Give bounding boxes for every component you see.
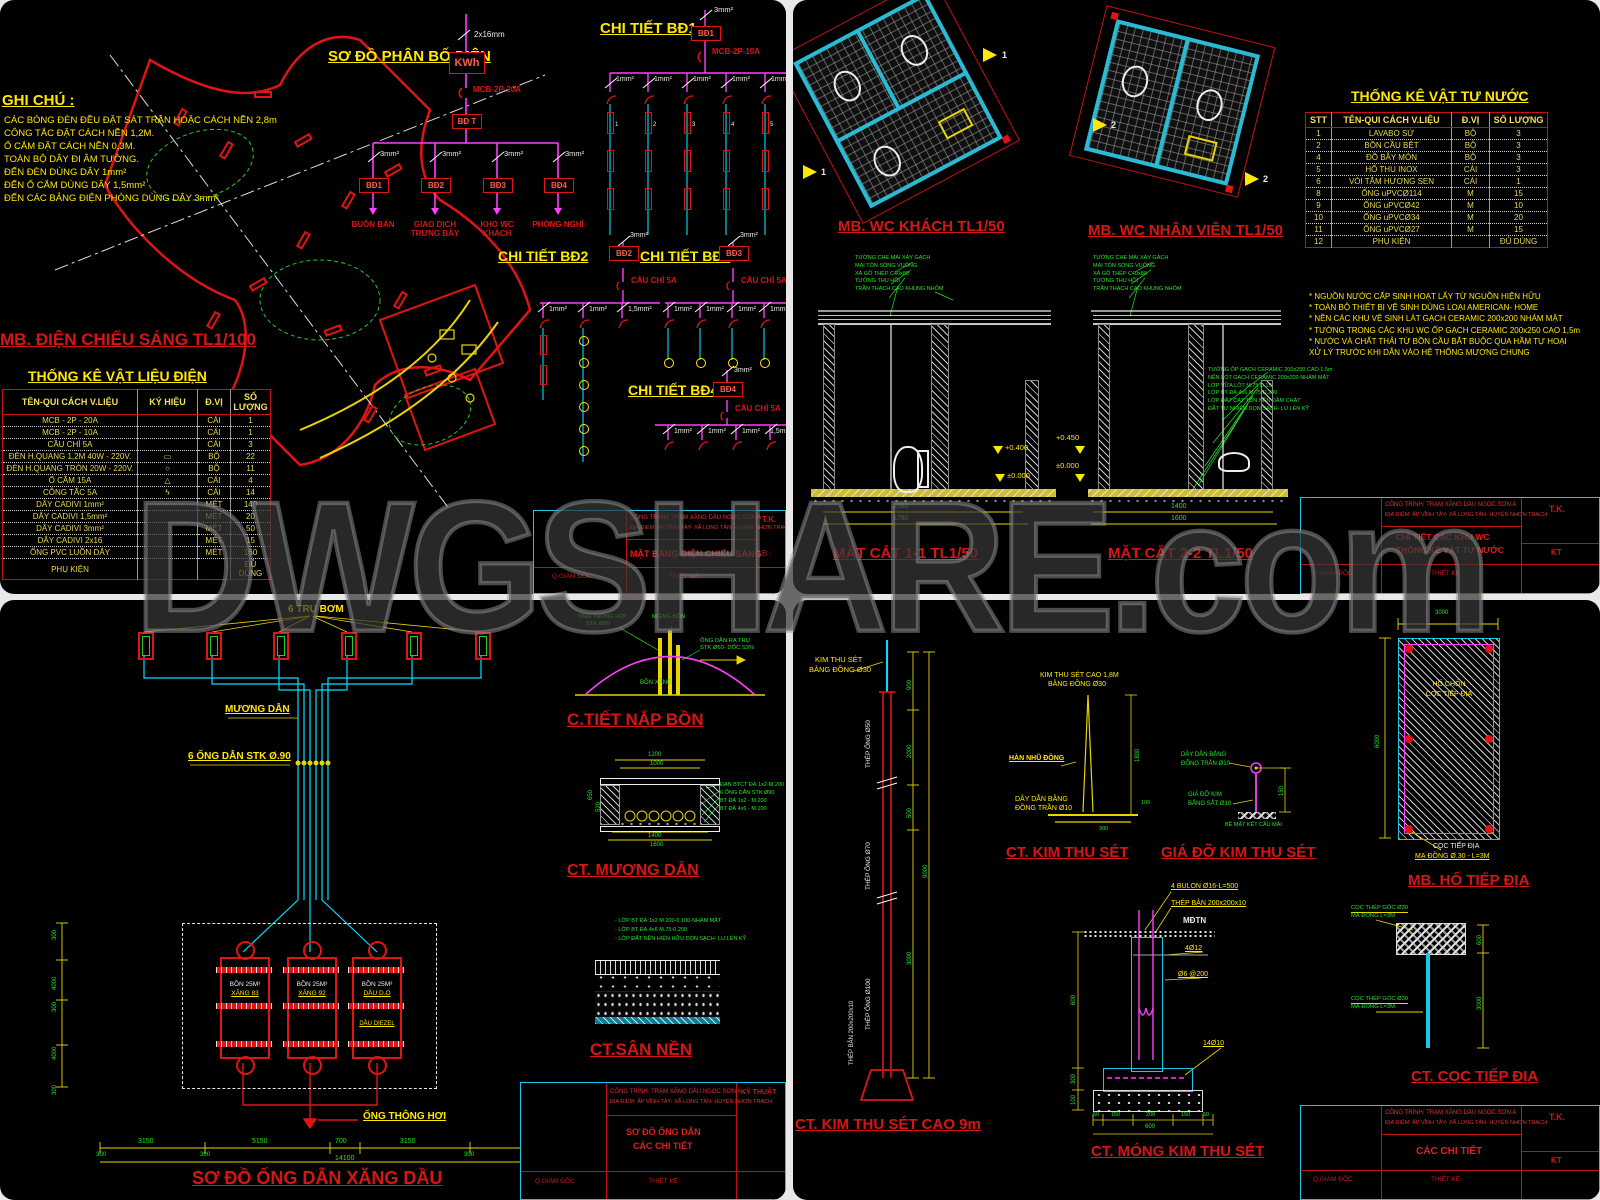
col-header: TÊN-QUI CÁCH V.LIỆU (3, 390, 138, 415)
dim-label: 3150 (138, 1138, 154, 1146)
table-cell: 20 (1490, 212, 1548, 224)
load-label: BUÔN BÁN (338, 220, 408, 229)
bd4-feeder: 3mm² (734, 367, 752, 375)
table-cell: HỐ THU INOX (1332, 164, 1452, 176)
wire-label: 1mm² (654, 76, 672, 84)
annotation: TƯỜNG THU HỒI (855, 279, 944, 285)
dim-label: 4000 (52, 977, 59, 990)
pit-pile-label: CỌC TIẾP ĐỊA (1433, 843, 1479, 851)
dim-label: 3000 (1435, 610, 1448, 617)
tb-role-director: Q.GIÁM ĐỐC (552, 573, 592, 581)
board-box: BĐ2 (421, 178, 451, 193)
dim-label: 200 (1146, 1112, 1155, 1118)
table-cell: 50 (231, 523, 271, 535)
pit-label: HỐ CHÔN (1399, 681, 1499, 689)
sec1-subfloor (811, 497, 1056, 506)
bracket-label: BẰNG SẮT Ø10 (1188, 801, 1231, 808)
dim-label: 300 (200, 1152, 210, 1159)
table-cell: VÒI TẮM HƯƠNG SEN (1332, 176, 1452, 188)
table-row: 8ỐNG uPVCØ114M15 (1306, 188, 1548, 200)
table-cell: ỐNG PVC LUỒN DÂY (3, 547, 138, 559)
col-header: KÝ HIỆU (138, 390, 198, 415)
flag-number: 2 (1263, 174, 1268, 184)
pumps-label: 6 TRỤ BƠM (288, 604, 344, 616)
dim-label: 300 (1071, 1074, 1078, 1084)
table-cell (138, 499, 198, 511)
panel-electrical-plan: GHI CHÚ : CÁC BÓNG ĐÈN ĐỀU ĐẶT SÁT TRẦN … (0, 0, 786, 594)
lamp-number: 2 (653, 122, 656, 129)
annotation: MÁI TÔN SÓNG VUÔNG (1093, 264, 1182, 270)
cap-annotation: ỐNG THÔNG HƠI (578, 614, 626, 621)
dim-label: 300 (96, 1152, 106, 1159)
table-cell: PHỤ KIỆN (3, 559, 138, 580)
table-cell: 3 (1490, 164, 1548, 176)
table-row: 2BỒN CẦU BỆTBỘ3 (1306, 140, 1548, 152)
dim-label: 600 (1071, 995, 1078, 1005)
load-label: PHÒNG NGHỈ (524, 220, 592, 229)
tb-right: B : (762, 549, 772, 559)
table-cell: CÁI (198, 415, 231, 427)
wire-label: 1mm² (549, 306, 567, 314)
found-ground-label: MĐTN (1183, 916, 1206, 925)
building-fixtures (428, 330, 476, 402)
dim-total: 14100 (335, 1155, 354, 1163)
pole-segment-label: THÉP ỐNG Ø70 (865, 842, 872, 890)
cap-annotation: BỒN XĂNG (640, 680, 672, 687)
pole-base-label: THÉP BẢN 200x200x10 (849, 1001, 856, 1065)
tb-drawing-name1: SƠ ĐỒ ỐNG DẪN (626, 1127, 701, 1138)
table-cell: ĐỒ BẪY MÓN (1332, 152, 1452, 164)
tb-drawing-name2: THỐNG KÊ VẬT TƯ NƯỚC (1396, 545, 1504, 556)
dim-label: 1000 (650, 761, 663, 768)
found-label: 4Ø12 (1185, 945, 1202, 953)
channel-wall (700, 785, 720, 825)
table-cell: DÂY CADIVI 2x16 (3, 535, 138, 547)
tb-role-director: Q.GIÁM ĐỐC (1313, 1176, 1353, 1184)
table-row: 6VÒI TẮM HƯƠNG SENCÁI1 (1306, 176, 1548, 188)
table-cell: BỘ (1452, 128, 1490, 140)
dim-label: 6000 (1375, 735, 1382, 748)
table-cell: 140 (231, 499, 271, 511)
tank: BỒN 25M³ XĂNG 92 (287, 957, 337, 1059)
wc-plan2-title: MB. WC NHÂN VIÊN TL1/50 (1088, 222, 1283, 239)
tank-label: BỒN 25M³ (289, 981, 335, 988)
table-cell: 3 (1490, 140, 1548, 152)
table-cell: CÁI (198, 439, 231, 451)
table-row: DÂY CADIVI 2x16MÉT15 (3, 535, 271, 547)
col-header: SỐ LƯỢNG (1490, 113, 1548, 128)
tb-project-line1: CÔNG TRÌNH: TRẠM XĂNG DẦU NGỌC SƠN A (630, 515, 761, 523)
note-line: * NỀN CÁC KHU VỆ SINH LÁT GẠCH CERAMIC 2… (1309, 314, 1580, 323)
annotation: - LỚP BT ĐÁ 1x2 M.200-0.100-NHÁM MẶT (615, 918, 746, 925)
table-row: ỐNG PVC LUỒN DÂYMÉT160 (3, 547, 271, 559)
note-line: * TƯỜNG TRONG CÁC KHU WC ỐP GẠCH CERAMIC… (1309, 326, 1580, 335)
pump-box (406, 632, 422, 660)
bd2-protection: CẦU CHÌ 5A (631, 276, 677, 285)
tb-project-line1: CÔNG TRÌNH: TRẠM XĂNG DẦU NGỌC SƠN A (610, 1089, 741, 1097)
note-line: CÁC BÓNG ĐÈN ĐỀU ĐẶT SÁT TRẦN HOẶC CÁCH … (4, 116, 277, 127)
pole-segment-label: THÉP ỐNG Ø50 (865, 720, 872, 768)
table-row: PHỤ KIỆNĐỦ DÙNG (3, 559, 271, 580)
bd3-protection: CẦU CHÌ 5A (741, 276, 786, 285)
elevation-label: +0.400 (1005, 444, 1028, 453)
found-label: 14Ø10 (1203, 1040, 1224, 1048)
table-row: Ổ CẮM 15A△CÁI4 (3, 475, 271, 487)
plan-title: MB. ĐIỆN CHIẾU SÁNG TL1/100 (0, 330, 256, 350)
note-line: * NƯỚC VÀ CHẤT THẢI TỪ BỒN CẦU BẮT BUỘC … (1309, 337, 1580, 346)
channel-section-bot (600, 826, 720, 832)
cap-title: C.TIẾT NẮP BỒN (567, 710, 704, 730)
channel-label: MƯƠNG DẪN (225, 704, 290, 716)
fuel-main-title: SƠ ĐỒ ỐNG DẪN XĂNG DẦU (192, 1168, 442, 1189)
sec1-wall (931, 324, 949, 491)
table-cell: ĐỦ DÙNG (231, 559, 271, 580)
bd2-feeder: 3mm² (630, 232, 648, 240)
table-cell: ỐNG uPVCØ114 (1332, 188, 1452, 200)
annotation: TƯỜNG CHE MÁI XÂY GẠCH (1093, 256, 1182, 262)
tank: BỒN 25M³ DẦU D.O DẦU DIEZEL (352, 957, 402, 1059)
table-cell: 10 (1306, 212, 1332, 224)
table-cell: ĐÈN H.QUANG 1,2M 40W - 220V. (3, 451, 138, 463)
table-cell: 1 (1490, 176, 1548, 188)
lamp-number: 5 (770, 122, 773, 129)
found-label: 4 BULON Ø16-L=500 (1171, 883, 1238, 891)
note-line: ĐẾN CÁC BẢNG ĐIỆN PHÒNG DÙNG DÂY 3mm² (4, 194, 277, 205)
annotation: - LỚP BT ĐÁ 4x6 M.75-0.200 (615, 927, 746, 934)
sec1-floor (811, 489, 1056, 497)
water-table-title: THỐNG KÊ VẬT TƯ NƯỚC (1351, 88, 1529, 104)
wire-label: 1mm² (732, 76, 750, 84)
title-block: CÔNG TRÌNH: TRẠM XĂNG DẦU NGỌC SƠN A ĐỊA… (533, 510, 786, 594)
dim-label: 300 (464, 1152, 474, 1159)
bd1-feeder: 3mm² (714, 6, 733, 15)
table-cell: ▭ (138, 451, 198, 463)
distribution-tree-lines (373, 14, 558, 208)
board-box: BĐ3 (483, 178, 513, 193)
panel-fuel-piping: 6 TRỤ BƠM MƯƠNG DẪN 6 ỐNG DẪN STK Ø.90 B… (0, 600, 786, 1200)
pile-label: MẠ ĐỒNG L=3M (1351, 1004, 1395, 1011)
pit-pile-label: MẠ ĐỒNG Ø.30 - L=3M (1415, 853, 1490, 861)
table-cell: LAVABO SỨ (1332, 128, 1452, 140)
pump-box (138, 632, 154, 660)
tank-label: XĂNG 92 (289, 990, 335, 997)
dim-label: 600 (1477, 935, 1484, 945)
table-cell: BỘ (1452, 152, 1490, 164)
table-cell (1452, 236, 1490, 248)
table-cell: 11 (1306, 224, 1332, 236)
dim-label: 3000 (907, 952, 914, 965)
annotation: BT ĐÁ 4x6 - M.100 (720, 806, 784, 812)
annotation: TƯỜNG THU HỒI (1093, 279, 1182, 285)
table-cell: CẦU CHÌ 5A (3, 439, 138, 451)
board-box: BĐ1 (359, 178, 389, 193)
table-row: ĐÈN H.QUANG TRÒN 20W - 220V.○BỘ11 (3, 463, 271, 475)
bd4-title: CHI TIẾT BĐ4 (628, 382, 718, 398)
dim-label: 1600 (1171, 515, 1187, 523)
lavabo-profile (1218, 452, 1250, 472)
annotation: ĐAN BTCT ĐÁ 1x2-M.200 (720, 782, 784, 788)
kwh-meter-box: KWh (449, 52, 485, 74)
sec2-wall (1188, 324, 1204, 491)
kim-label: KIM THU SÉT CAO 1,8M (1040, 672, 1119, 680)
annotation: XÀ GỒ THÉP C40x80 (1093, 272, 1182, 278)
load-label: KHO WC KHÁCH (467, 220, 527, 238)
tb-project-line2: ĐỊA ĐIỂM: ẤP VĨNH TÂY- XÃ LONG TÂN- HUYỆ… (1385, 1120, 1547, 1127)
wc-plan-nhanvien (1084, 19, 1260, 186)
table-cell: BỘ (198, 451, 231, 463)
table-row: MCB - 2P - 20ACÁI1 (3, 415, 271, 427)
branch-wire-label: 3mm² (442, 150, 461, 159)
table-row: 9ỐNG uPVCØ42M10 (1306, 200, 1548, 212)
cap-annotation: ỐNG DẪN RA TRỤ (700, 638, 750, 645)
table-cell: CÁI (1452, 176, 1490, 188)
table-cell: 15 (1490, 224, 1548, 236)
elevation-label: ±0.000 (1056, 462, 1079, 471)
table-row: 5HỐ THU INOXCÁI3 (1306, 164, 1548, 176)
load-label: GIAO DỊCH TRƯNG BÀY (405, 220, 465, 238)
col-header: STT (1306, 113, 1332, 128)
table-cell: 15 (231, 535, 271, 547)
col-header: SỐ LƯỢNG (231, 390, 271, 415)
flag-number: 2 (1111, 120, 1116, 130)
roof-surface-hatch (1238, 812, 1276, 819)
kim-wire-label: DÂY DẪN BẰNG (1015, 796, 1068, 804)
title-block: CÔNG TRÌNH: TRẠM XĂNG DẦU NGỌC SƠN A ĐỊA… (1300, 497, 1600, 594)
wire-label: 1mm² (589, 306, 607, 314)
wire-label: 1mm² (693, 76, 711, 84)
elevation-label: +0.450 (1056, 434, 1079, 443)
table-cell: 10 (1490, 200, 1548, 212)
note-line: Ổ CẮM ĐẶT CÁCH NỀN 0,3M. (4, 142, 277, 153)
bd2-board-box: BĐ2 (609, 246, 639, 261)
table-cell: ĐỦ DÙNG (1490, 236, 1548, 248)
water-notes: * NGUỒN NƯỚC CẤP SINH HOẠT LẤY TỪ NGUỒN … (1309, 292, 1580, 359)
table-cell (138, 415, 198, 427)
dim-label: 4000 (52, 1047, 59, 1060)
table-cell: CÁI (198, 475, 231, 487)
table-cell (138, 559, 198, 580)
col-header: Đ.VỊ (198, 390, 231, 415)
table-row: 11ỐNG uPVCØ27M15 (1306, 224, 1548, 236)
title-block: CÔNG TRÌNH: TRẠM XĂNG DẦU NGỌC SƠN A ĐỊA… (520, 1082, 786, 1200)
pit-label: CỌC TIẾP ĐỊA (1399, 691, 1499, 699)
wire-label: 1,5mm² (628, 306, 652, 314)
cap-annotation: STK Ø60- DỐC S3% (700, 645, 754, 652)
note-line: ĐẾN ĐÈN DÙNG DÂY 1mm² (4, 168, 277, 179)
cad-sheet: GHI CHÚ : CÁC BÓNG ĐÈN ĐỀU ĐẶT SÁT TRẦN … (0, 0, 1600, 1200)
wire-label: 1,5mm² (770, 428, 786, 436)
tb-project-line1: CÔNG TRÌNH: TRẠM XĂNG DẦU NGỌC SƠN A (1385, 1110, 1516, 1118)
title-block: CÔNG TRÌNH: TRẠM XĂNG DẦU NGỌC SƠN A ĐỊA… (1300, 1105, 1600, 1200)
wire-label: 1mm² (706, 306, 724, 314)
table-cell: △ (138, 475, 198, 487)
bracket-label: DÂY DẪN BẰNG (1181, 752, 1226, 759)
floor-layer4 (595, 1017, 720, 1024)
dim-label: 100 (1071, 1095, 1078, 1105)
table-cell: 160 (231, 547, 271, 559)
dim-label: 1200 (648, 752, 661, 759)
elec-table-title: THỐNG KÊ VẬT LIỆU ĐIỆN (28, 368, 207, 384)
earth-pit: HỐ CHÔN CỌC TIẾP ĐỊA (1398, 638, 1500, 840)
sec2-wall (1261, 380, 1273, 491)
annotation: - LỚP ĐẤT NỀN HIỆN HỮU DỌN SẠCH- LU LÈN … (615, 936, 746, 943)
gravel-band (1093, 1090, 1203, 1112)
mcb-symbol (459, 88, 462, 98)
sec2-roof (1093, 312, 1281, 325)
pole-tip-label: BẰNG ĐỒNG Ø30 (809, 666, 871, 675)
table-cell: M (1452, 188, 1490, 200)
pump-box (341, 632, 357, 660)
kim-weld-label: HÀN NHŨ ĐỒNG (1009, 755, 1064, 763)
table-cell: 22 (231, 451, 271, 463)
wire-label: 1mm² (742, 428, 760, 436)
table-cell: ỐNG uPVCØ34 (1332, 212, 1452, 224)
table-cell: 20 (231, 511, 271, 523)
pipes-label: 6 ỐNG DẪN STK Ø.90 (188, 751, 291, 763)
table-cell: M (1452, 212, 1490, 224)
tb-right: KỸ THUẬT (741, 1089, 776, 1098)
bd3-title: CHI TIẾT BĐ3 (640, 248, 730, 264)
table-cell (138, 523, 198, 535)
table-cell: ○ (138, 463, 198, 475)
lamp-number: 1 (615, 122, 618, 129)
pile-label: MẠ ĐỒNG L=3M (1351, 913, 1395, 920)
table-cell: 9 (1306, 200, 1332, 212)
table-cell: DÂY CADIVI 3mm² (3, 523, 138, 535)
table-cell: 3 (1490, 152, 1548, 164)
panel-lightning-protection: KIM THU SÉT BẰNG ĐỒNG Ø30 THÉP ỐNG Ø50 T… (793, 600, 1600, 1200)
note-line: * TOÀN BỘ THIẾT BỊ VỆ SINH DÙNG LOẠI AME… (1309, 303, 1580, 312)
sec2-title: MẶT CẮT 2-2 TL1/50 (1108, 545, 1253, 562)
pump-box (475, 632, 491, 660)
table-cell: MÉT (198, 547, 231, 559)
table-cell: BỒN CẦU BỆT (1332, 140, 1452, 152)
cap-annotation: MIỆNG BỒN (652, 614, 685, 621)
table-cell (198, 559, 231, 580)
dim-label: 300 (52, 1085, 59, 1095)
table-cell: 11 (231, 463, 271, 475)
pile-title: CT. CỌC TIẾP ĐỊA (1411, 1068, 1538, 1085)
table-cell: DÂY CADIVI 1mm² (3, 499, 138, 511)
pump-box (273, 632, 289, 660)
notes-list: CÁC BÓNG ĐÈN ĐỀU ĐẶT SÁT TRẦN HOẶC CÁCH … (4, 116, 277, 206)
branch-wire-label: 3mm² (504, 150, 523, 159)
bd1-title: CHI TIẾT BĐ1 (600, 20, 697, 37)
flag-number: 1 (1002, 50, 1007, 60)
annotation: 6 ỐNG DẪN STK Ø90 (720, 790, 784, 796)
panel-wc-details: 1 1 2 2 MB. WC KHÁCH TL1/50 MB. WC NHÂN … (793, 0, 1600, 594)
table-row: CẦU CHÌ 5ACÁI3 (3, 439, 271, 451)
wire-label: 1mm² (616, 76, 634, 84)
tb-role-design: THIẾT KẾ (1431, 1176, 1460, 1184)
toilet-tank (917, 450, 929, 488)
found-label: THÉP BẢN 200x200x10 (1171, 900, 1246, 908)
pole-title: CT. KIM THU SÉT CAO 9m (795, 1116, 981, 1133)
table-cell: BỘ (198, 463, 231, 475)
table-cell: DÂY CADIVI 1,5mm² (3, 511, 138, 523)
table-cell: MÉT (198, 535, 231, 547)
bracket-title: GIÁ ĐỠ KIM THU SÉT (1161, 844, 1315, 861)
dim-label: 3000 (1477, 997, 1484, 1010)
pump-box (206, 632, 222, 660)
note-line: TOÀN BỘ DÂY ĐI ÂM TƯỜNG. (4, 155, 277, 166)
sec1-title: MẶT CẮT 1-1 TL1/50 (833, 545, 978, 562)
channel-title: CT. MƯƠNG DẪN (567, 862, 699, 880)
kim-wire-label: ĐỒNG TRẦN Ø10 (1015, 805, 1072, 813)
table-cell: MÉT (198, 499, 231, 511)
lamp-number: 4 (731, 122, 734, 129)
wc-plan1-title: MB. WC KHÁCH TL1/50 (838, 218, 1005, 235)
dim-label: 500 (907, 808, 914, 818)
table-cell: 12 (1306, 236, 1332, 248)
kim-title: CT. KIM THU SÉT (1006, 844, 1129, 861)
dim-label: 50 (1093, 1112, 1099, 1118)
table-cell (138, 547, 198, 559)
table-cell: 3 (231, 439, 271, 451)
table-row: MCB - 2P - 10ACÁI1 (3, 427, 271, 439)
pole-segment-label: THÉP ỐNG Ø100 (865, 978, 872, 1030)
tb-project-line2: ĐỊA ĐIỂM: ẤP VĨNH TÂY- XÃ LONG TÂN- HUYỆ… (610, 1099, 772, 1106)
annotation: TRẦN THẠCH CAO KHUNG NHÔM (1093, 287, 1182, 293)
wire-label: 1mm² (738, 306, 756, 314)
tb-project-line1: CÔNG TRÌNH: TRẠM XĂNG DẦU NGỌC SƠN A (1385, 502, 1516, 510)
switch-hooks (607, 96, 771, 104)
sec2-floor (1088, 489, 1288, 497)
vent-label: ỐNG THÔNG HƠI (363, 1111, 446, 1123)
floor-layer3 (595, 991, 720, 1017)
tank-label: DẦU DIEZEL (354, 1021, 400, 1028)
pile-label: CỌC THÉP GÓC Ø30 (1351, 996, 1408, 1004)
tank-label: DẦU D.O (354, 990, 400, 997)
flag-number: 1 (821, 167, 826, 177)
annotation: TƯỜNG ỐP GẠCH CERAMIC 200x250 CAO 1.5m (1208, 368, 1333, 374)
table-cell: 8 (1306, 188, 1332, 200)
table-cell: BỘ (1452, 140, 1490, 152)
tb-kt: KT (1551, 548, 1562, 558)
feeder-label: 2x16mm (474, 30, 505, 39)
dim-label: 1600 (650, 842, 663, 849)
roof-notes-1: TƯỜNG CHE MÁI XÂY GẠCHMÁI TÔN SÓNG VUÔNG… (855, 256, 944, 295)
table-cell: M (1452, 224, 1490, 236)
pile-cap-hatch (1396, 923, 1466, 955)
table-cell: MÉT (198, 511, 231, 523)
dim-label: 300 (52, 1002, 59, 1012)
table-cell: 6 (1306, 176, 1332, 188)
bracket-label: GIÁ ĐỠ KIM (1188, 792, 1222, 799)
water-material-table: STT TÊN-QUI CÁCH V.LIỆU Đ.VỊ SỐ LƯỢNG 1L… (1305, 112, 1548, 248)
found-label: Ø6 @200 (1178, 971, 1208, 979)
tb-project-line2: ĐỊA ĐIỂM: ẤP VĨNH TÂY- XÃ LONG TÂN- HUYỆ… (630, 525, 786, 532)
table-cell: 4 (231, 475, 271, 487)
dim-total: 9000 (923, 865, 930, 878)
floor-title: CT.SÂN NỀN (590, 1040, 692, 1060)
branch-wire-label: 3mm² (380, 150, 399, 159)
dim-label: 50 (1203, 1112, 1209, 1118)
channel-section-top (600, 778, 720, 785)
dim-label: 1580 (893, 503, 909, 511)
ground-band (1083, 930, 1215, 937)
tb-drawing-name1: CHI TIẾT CÁC KHU WC (1396, 532, 1490, 543)
table-cell (138, 439, 198, 451)
dim-label: 1800 (1135, 749, 1142, 762)
wire-label: 1mm² (674, 428, 692, 436)
bd3-board-box: BĐ3 (719, 246, 749, 261)
bd2-title: CHI TIẾT BĐ2 (498, 248, 588, 264)
table-cell: M (1452, 200, 1490, 212)
tank-label: BỒN 25M³ (222, 981, 268, 988)
found-column (1131, 937, 1163, 1072)
board-box: BĐ4 (544, 178, 574, 193)
